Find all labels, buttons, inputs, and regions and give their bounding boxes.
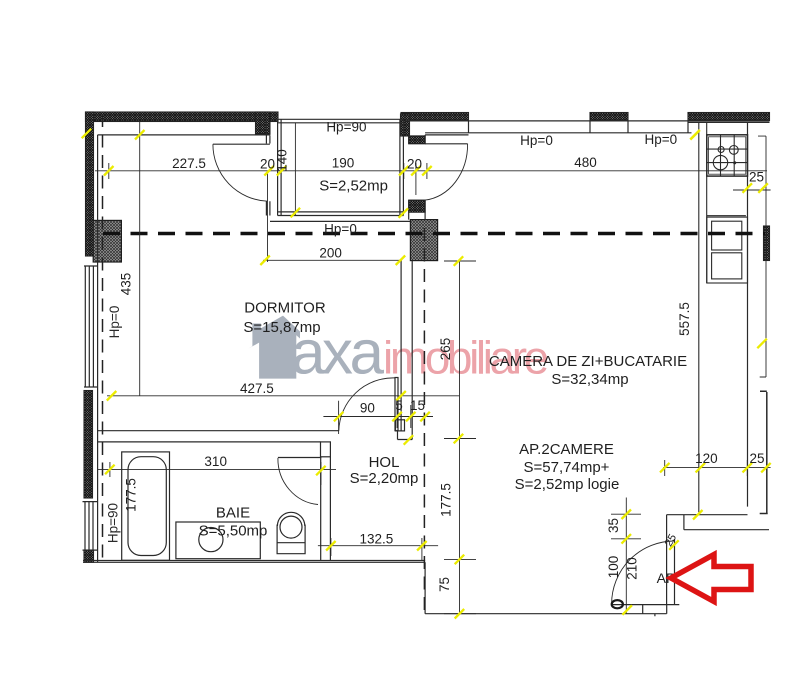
svg-text:265: 265	[438, 338, 453, 361]
svg-text:75: 75	[437, 577, 452, 592]
svg-text:Hp=0: Hp=0	[520, 133, 553, 148]
svg-text:S=57,74mp+: S=57,74mp+	[524, 459, 610, 476]
svg-text:480: 480	[574, 155, 597, 170]
svg-text:427.5: 427.5	[240, 381, 274, 396]
svg-text:25: 25	[749, 451, 764, 466]
svg-text:35: 35	[606, 518, 621, 533]
svg-text:AP.2CAMERE: AP.2CAMERE	[519, 441, 614, 458]
svg-text:140: 140	[275, 149, 290, 172]
svg-text:S=5,50mp: S=5,50mp	[199, 523, 268, 540]
svg-text:CAMERA DE ZI+BUCATARIE: CAMERA DE ZI+BUCATARIE	[489, 353, 687, 370]
svg-text:S=15,87mp: S=15,87mp	[243, 319, 320, 336]
svg-text:5: 5	[395, 398, 403, 413]
svg-text:310: 310	[204, 454, 227, 469]
svg-text:177.5: 177.5	[124, 478, 139, 512]
svg-text:100: 100	[606, 556, 621, 579]
svg-text:120: 120	[695, 451, 718, 466]
svg-text:Hp=0: Hp=0	[324, 222, 357, 237]
svg-text:Hp=0: Hp=0	[107, 306, 122, 339]
svg-text:90: 90	[360, 401, 375, 416]
svg-text:S=32,34mp: S=32,34mp	[551, 371, 628, 388]
svg-text:20: 20	[260, 157, 275, 172]
svg-text:25: 25	[749, 170, 764, 185]
svg-text:Hp=90: Hp=90	[326, 120, 366, 135]
svg-text:HOL: HOL	[369, 454, 400, 471]
svg-text:BAIE: BAIE	[216, 505, 250, 522]
svg-text:200: 200	[319, 246, 342, 261]
svg-text:S=2,52mp logie: S=2,52mp logie	[515, 476, 620, 493]
svg-text:210: 210	[625, 557, 640, 580]
svg-text:132.5: 132.5	[360, 532, 394, 547]
svg-text:Hp=0: Hp=0	[644, 132, 677, 147]
svg-text:15: 15	[410, 398, 425, 413]
svg-text:190: 190	[332, 156, 355, 171]
svg-text:Hp=90: Hp=90	[106, 503, 121, 543]
svg-text:S=2,20mp: S=2,20mp	[350, 470, 419, 487]
svg-text:S=2,52mp: S=2,52mp	[319, 177, 388, 194]
svg-text:227.5: 227.5	[172, 156, 206, 171]
svg-text:557.5: 557.5	[677, 302, 692, 336]
svg-text:DORMITOR: DORMITOR	[244, 300, 326, 317]
svg-text:20: 20	[407, 157, 422, 172]
svg-text:435: 435	[119, 273, 134, 296]
svg-text:177.5: 177.5	[439, 483, 454, 517]
